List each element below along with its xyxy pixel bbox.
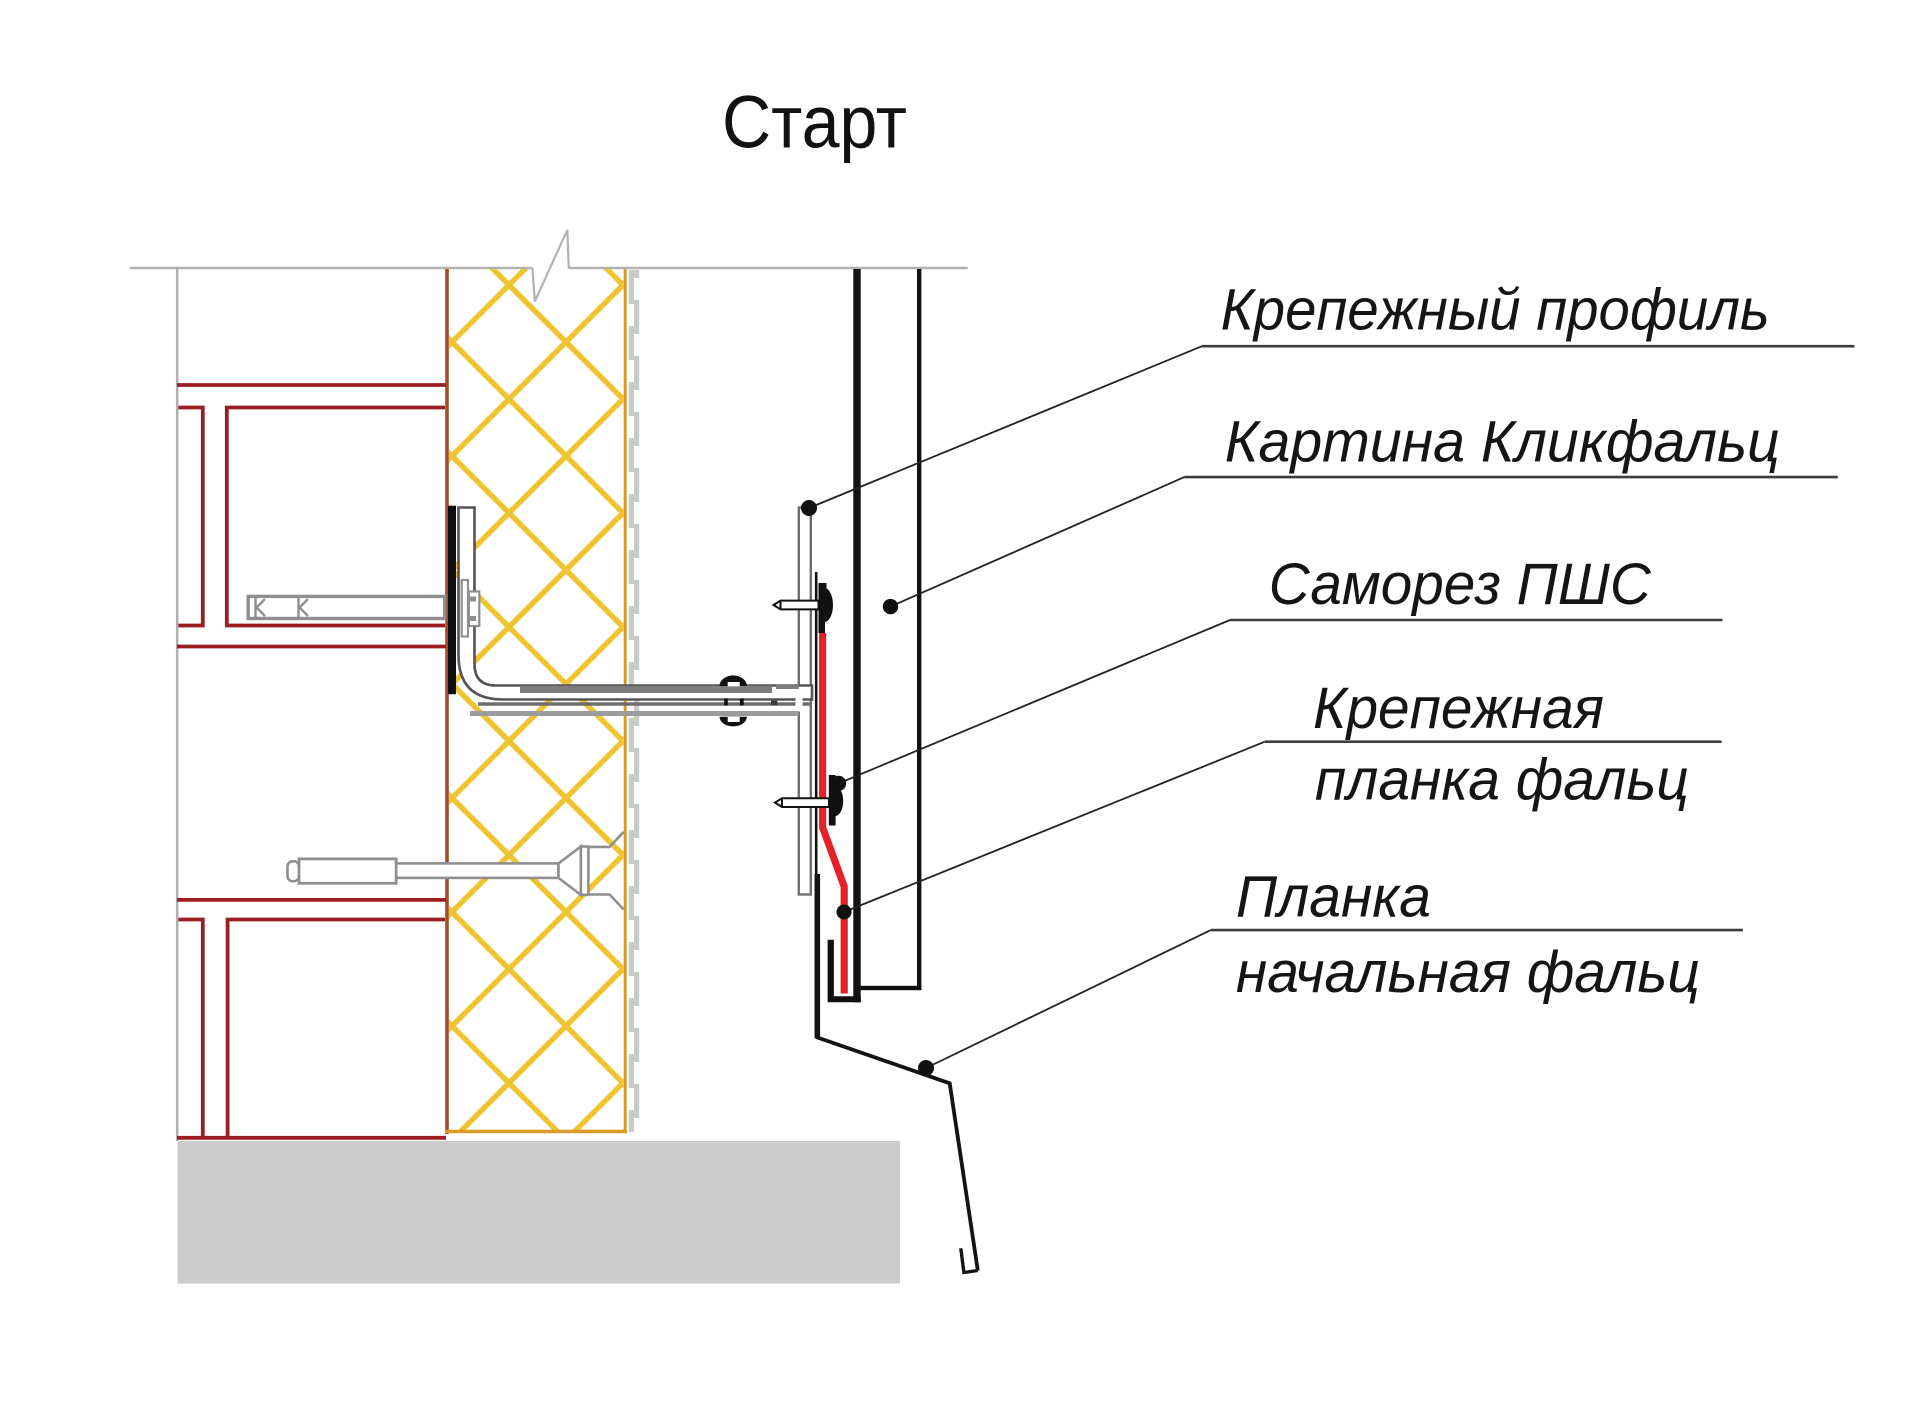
- svg-text:Саморез ПШС: Саморез ПШС: [1269, 552, 1652, 617]
- svg-text:начальная фальц: начальная фальц: [1236, 940, 1700, 1005]
- svg-text:Картина Кликфальц: Картина Кликфальц: [1225, 410, 1780, 475]
- svg-text:Планка: Планка: [1236, 865, 1431, 930]
- svg-text:Крепежная: Крепежная: [1313, 676, 1604, 741]
- svg-text:Старт: Старт: [722, 81, 907, 164]
- svg-text:планка фальц: планка фальц: [1315, 748, 1689, 813]
- svg-text:Крепежный профиль: Крепежный профиль: [1221, 277, 1770, 342]
